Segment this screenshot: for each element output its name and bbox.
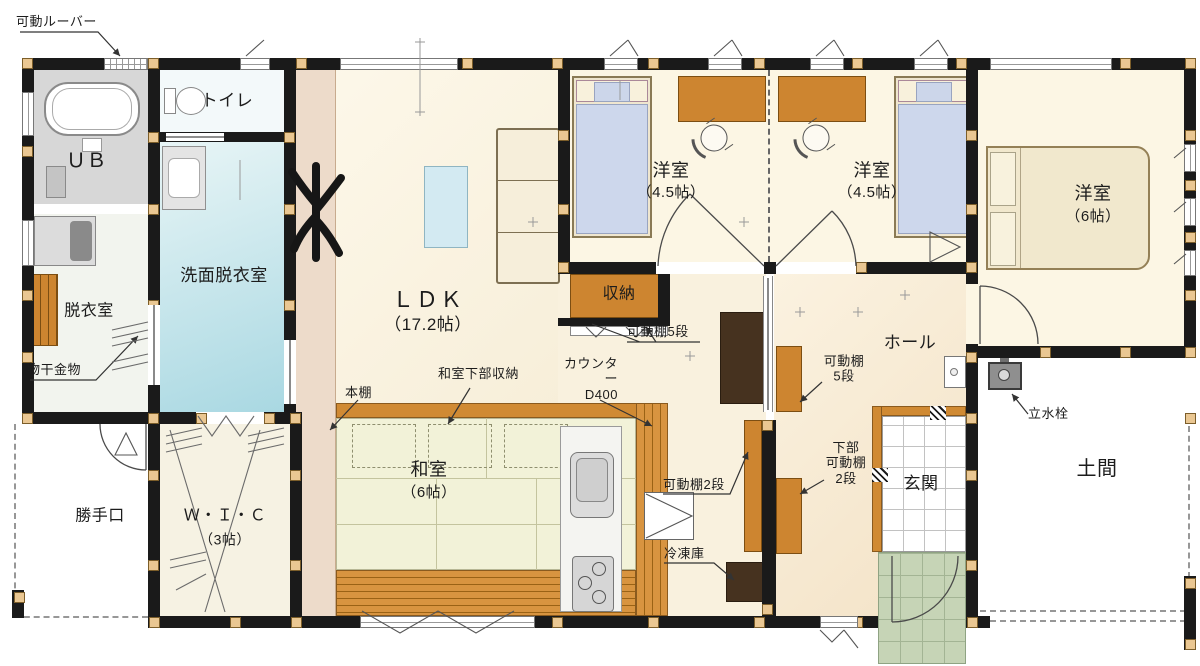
genkan-frame-top <box>872 406 966 416</box>
pillar-post <box>966 470 977 481</box>
door-opening <box>284 340 296 404</box>
wall <box>966 58 978 284</box>
pillar-post <box>648 58 659 69</box>
label-toilet: トイレ <box>201 91 254 111</box>
wall <box>148 412 160 628</box>
window <box>1184 198 1196 226</box>
pillar-post <box>852 58 863 69</box>
pillar-post <box>149 617 160 628</box>
pillar-post <box>1185 347 1196 358</box>
window <box>22 220 34 266</box>
pillar-post <box>22 146 33 157</box>
bed-pillow <box>916 82 952 102</box>
label-genkan: 玄関 <box>904 474 939 494</box>
pillar-post <box>230 617 241 628</box>
label-ldk: ＬＤＫ <box>392 287 464 313</box>
label-ub: ＵＢ <box>66 150 107 174</box>
label-wic: Ｗ・Ｉ・Ｃ <box>184 508 267 527</box>
washitsu-under-storage <box>504 424 568 468</box>
pillar-post <box>196 413 207 424</box>
dining-table <box>424 166 468 248</box>
pillar-post <box>966 413 977 424</box>
bedroom-window <box>990 58 1112 70</box>
pillar-post <box>290 560 301 571</box>
label-youshitsu1: 洋室 <box>653 160 690 181</box>
label-youshitsu1-size: （4.5帖） <box>637 184 706 202</box>
vanity-bowl <box>168 158 200 198</box>
pillar-post <box>148 413 159 424</box>
pillar-post <box>291 617 302 628</box>
wall <box>290 424 302 628</box>
pillar-post <box>1185 58 1196 69</box>
pillar-post <box>1040 347 1051 358</box>
window <box>820 616 858 628</box>
wall <box>966 344 978 628</box>
label-washitsu-kabu: 和室下部収納 <box>438 366 519 381</box>
label-shunou: 収納 <box>602 286 635 305</box>
sofa-cushion-line <box>498 232 558 233</box>
washing-machine-drum <box>70 221 92 261</box>
pillar-post <box>1185 290 1196 301</box>
washitsu-wood-frame-top <box>336 403 668 418</box>
pillar-post <box>22 413 33 424</box>
pantry-shelf <box>744 420 762 552</box>
bed-line <box>1020 148 1021 268</box>
hall-shelf-5dan <box>776 346 802 412</box>
pillar-post <box>22 290 33 301</box>
pillar-post <box>148 204 159 215</box>
wall <box>856 262 978 274</box>
door-opening <box>166 133 224 141</box>
pillar-post <box>14 592 25 603</box>
eave-line <box>14 424 16 618</box>
window <box>1184 250 1196 276</box>
pillar-post <box>1120 347 1131 358</box>
pillar-post <box>966 352 977 363</box>
pillar-post <box>148 560 159 571</box>
pillar-post <box>1185 639 1196 650</box>
engawa-sliding-window <box>360 616 535 628</box>
bed-pillow <box>990 212 1016 266</box>
desk <box>678 76 766 122</box>
tatami-line <box>536 478 537 570</box>
door-opening <box>148 305 160 385</box>
pillar-post <box>966 560 977 571</box>
bed-mattress <box>576 104 648 234</box>
pillar-post <box>966 130 977 141</box>
window <box>22 92 34 136</box>
pillar-post <box>956 58 967 69</box>
wall-center-post <box>764 262 776 274</box>
pillar-post <box>290 470 301 481</box>
pillar-post <box>1185 130 1196 141</box>
label-kadoudana5-shunou: 可動棚5段 <box>627 324 689 339</box>
feature-wall-band <box>296 70 336 616</box>
stove-burner <box>592 590 606 604</box>
pillar-post <box>284 300 295 311</box>
pillar-post <box>284 204 295 215</box>
pillar-post <box>148 470 159 481</box>
toilet-tank <box>164 88 176 114</box>
wall <box>978 346 1196 358</box>
doma-boundary <box>970 620 1196 622</box>
label-kadoudana2: 可動棚2段 <box>663 477 725 492</box>
washitsu-under-storage <box>352 424 416 468</box>
pillar-post <box>1185 578 1196 589</box>
sofa <box>496 128 560 284</box>
future-partition-line <box>768 70 770 262</box>
wall <box>22 412 162 424</box>
eave-line <box>14 616 148 618</box>
bathtub-inner <box>52 88 132 130</box>
pillar-post <box>558 204 569 215</box>
pillar-post <box>462 58 473 69</box>
bath-louver-window <box>104 58 148 70</box>
pillar-post <box>762 604 773 615</box>
pillar-post <box>856 262 867 273</box>
pillar-post <box>1120 58 1131 69</box>
shelf-symbol-box <box>644 492 694 540</box>
pillar-post <box>552 58 563 69</box>
window <box>708 58 742 70</box>
wall <box>762 420 776 616</box>
label-youshitsu2-size: （4.5帖） <box>838 184 907 202</box>
pillar-post <box>552 617 563 628</box>
bed-mattress <box>898 104 970 234</box>
label-datsui: 脱衣室 <box>64 303 114 322</box>
stove-burner <box>578 576 592 590</box>
bed-pillow <box>990 152 1016 206</box>
label-youshitsu2: 洋室 <box>854 160 891 181</box>
genkan-hatch <box>930 406 946 420</box>
label-kadou-louver: 可動ルーバー <box>16 14 97 29</box>
pillar-post <box>966 262 977 273</box>
pillar-post <box>290 413 301 424</box>
hall-shelf-lower-2dan <box>776 478 802 554</box>
label-washitsu: 和室 <box>411 459 448 480</box>
label-kabu-kadoudana2: 下部 可動棚 2段 <box>826 440 867 486</box>
bath-stool <box>46 166 66 198</box>
pillar-post <box>558 130 569 141</box>
label-youshitsu3: 洋室 <box>1075 183 1112 204</box>
label-hondana: 本棚 <box>345 385 372 400</box>
label-tatemizu: 立水栓 <box>1028 406 1069 421</box>
pillar-post <box>22 58 33 69</box>
floor-plan: ＵＢ トイレ 洗面脱衣室 脱衣室 ＬＤＫ （17.2帖） 洋室 （4.5帖） 洋… <box>0 0 1200 666</box>
doma-boundary <box>1188 426 1190 578</box>
pillar-post <box>284 132 295 143</box>
window <box>240 58 270 70</box>
pillar-post <box>1185 413 1196 424</box>
bed-pillow <box>594 82 630 102</box>
pillar-post <box>754 617 765 628</box>
wall <box>658 274 670 326</box>
genkan-hatch <box>872 468 888 482</box>
stove-burner <box>592 562 606 576</box>
doma-boundary <box>970 610 1196 612</box>
kitchen-sink-basin <box>576 458 608 502</box>
outdoor-faucet-bowl <box>998 369 1010 381</box>
window <box>604 58 638 70</box>
label-hall: ホール <box>884 333 937 353</box>
label-reitouko: 冷凍庫 <box>664 546 705 561</box>
wall <box>558 262 656 274</box>
label-monohoshi: 物干金物 <box>27 362 81 377</box>
label-kadoudana5-hall: 可動棚 5段 <box>824 354 865 385</box>
label-wic-size: （3帖） <box>199 532 251 549</box>
hand-sink-drain <box>950 368 958 376</box>
window <box>810 58 844 70</box>
label-doma: 土間 <box>1077 458 1118 482</box>
pillar-post <box>1185 180 1196 191</box>
pillar-post <box>148 58 159 69</box>
pillar-post <box>754 58 765 69</box>
label-senmen: 洗面脱衣室 <box>180 266 268 286</box>
label-youshitsu3-size: （6帖） <box>1065 208 1120 226</box>
pillar-post <box>296 58 307 69</box>
pillar-post <box>148 132 159 143</box>
ldk-window <box>340 58 458 70</box>
pillar-post <box>1185 232 1196 243</box>
window <box>1184 144 1196 172</box>
pillar-post <box>648 617 659 628</box>
pillar-post <box>558 262 569 273</box>
desk <box>778 76 866 122</box>
label-katteguchi: 勝手口 <box>75 508 125 527</box>
pillar-post <box>264 413 275 424</box>
sofa-cushion-line <box>498 180 558 181</box>
pillar-post <box>762 420 773 431</box>
label-counter: カウンター D400 <box>556 356 618 402</box>
label-ldk-size: （17.2帖） <box>384 315 472 335</box>
window <box>914 58 948 70</box>
pillar-post <box>966 204 977 215</box>
door-opening <box>966 284 978 344</box>
refrigerator <box>720 312 768 404</box>
entrance-porch <box>878 552 966 664</box>
pillar-post <box>967 617 978 628</box>
sliding-door <box>763 276 773 412</box>
label-washitsu-size: （6帖） <box>401 484 456 502</box>
wall <box>558 58 570 274</box>
